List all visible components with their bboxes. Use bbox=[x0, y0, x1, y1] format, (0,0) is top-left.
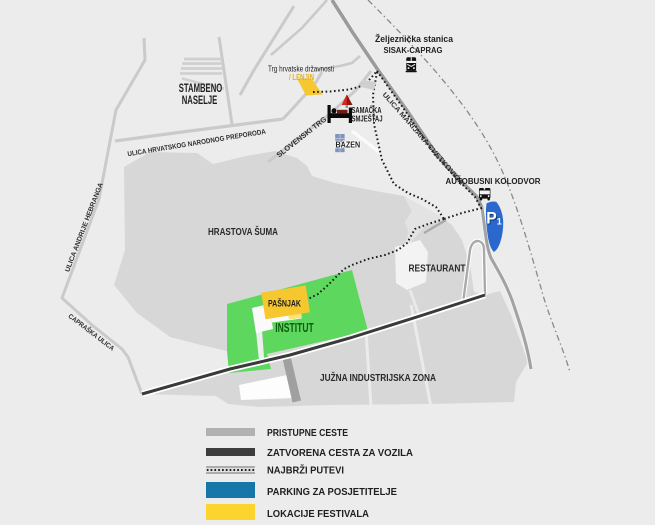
svg-text:SISAK-CAPRAG: SISAK-CAPRAG bbox=[384, 45, 443, 55]
svg-text:NAJBRŽI PUTEVI: NAJBRŽI PUTEVI bbox=[267, 463, 344, 476]
svg-text:JUŽNA INDUSTRIJSKA ZONA: JUŽNA INDUSTRIJSKA ZONA bbox=[320, 371, 436, 384]
svg-text:STAMBENO: STAMBENO bbox=[179, 83, 223, 95]
svg-text:PARKING ZA POSJETITELJE: PARKING ZA POSJETITELJE bbox=[267, 487, 397, 498]
svg-text:NASELJE: NASELJE bbox=[182, 95, 218, 107]
svg-text:PAŠNJAK: PAŠNJAK bbox=[268, 298, 301, 309]
svg-text:PRISTUPNE CESTE: PRISTUPNE CESTE bbox=[267, 428, 348, 439]
svg-text:AUTOBUSNI KOLODVOR: AUTOBUSNI KOLODVOR bbox=[446, 177, 541, 186]
svg-text:BAZEN: BAZEN bbox=[336, 139, 361, 149]
svg-text:HRASTOVA ŠUMA: HRASTOVA ŠUMA bbox=[208, 225, 278, 238]
svg-text:1: 1 bbox=[497, 217, 502, 227]
svg-text:/ LENJIN: / LENJIN bbox=[289, 72, 314, 82]
svg-text:RESTAURANT: RESTAURANT bbox=[409, 263, 466, 275]
svg-text:LOKACIJE FESTIVALA: LOKACIJE FESTIVALA bbox=[267, 509, 370, 520]
svg-text:SMJEŠTAJ: SMJEŠTAJ bbox=[352, 115, 383, 124]
svg-text:P: P bbox=[486, 209, 497, 228]
svg-text:Željeznička stanica: Željeznička stanica bbox=[375, 33, 453, 44]
svg-text:INSTITUT: INSTITUT bbox=[275, 321, 314, 335]
svg-text:ZATVORENA CESTA ZA VOZILA: ZATVORENA CESTA ZA VOZILA bbox=[267, 448, 414, 459]
